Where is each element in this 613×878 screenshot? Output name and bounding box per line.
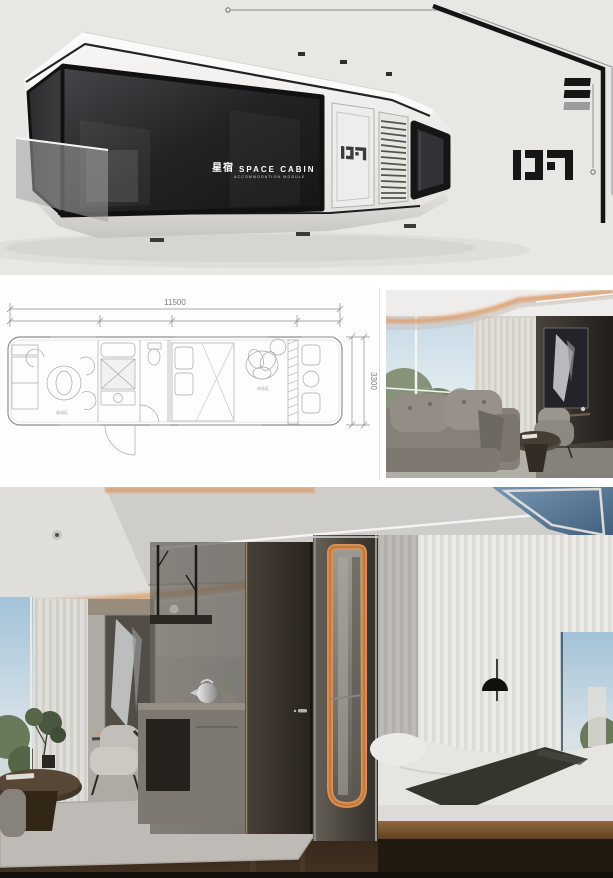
brand-cn: 星宿 [212,164,234,174]
brand-en: SPACE CABIN [239,166,316,174]
hero-section: 星宿 SPACE CABIN ACCOMMODATION MODULE [0,0,613,275]
balcony-glass [16,138,108,222]
floor-plan: 11500 3300 休闲区 休息区 [0,287,378,481]
bars-icon [561,78,592,110]
divider-line [379,288,380,480]
dim-depth: 3300 [369,372,378,390]
living-room-photo [386,290,613,478]
zone-label-rest: 休息区 [257,385,269,391]
brand-sub: ACCOMMODATION MODULE [234,176,316,180]
rear-window [414,124,447,196]
dim-total-width: 11500 [164,298,186,307]
cabin-render [0,0,613,275]
brand-lockup: 星宿 SPACE CABIN ACCOMMODATION MODULE [212,164,316,180]
interior-main-photo [0,487,613,878]
d7-logo [513,150,573,180]
zone-label-lounge: 休闲区 [56,409,68,415]
presentation-page: 星宿 SPACE CABIN ACCOMMODATION MODULE [0,0,613,878]
